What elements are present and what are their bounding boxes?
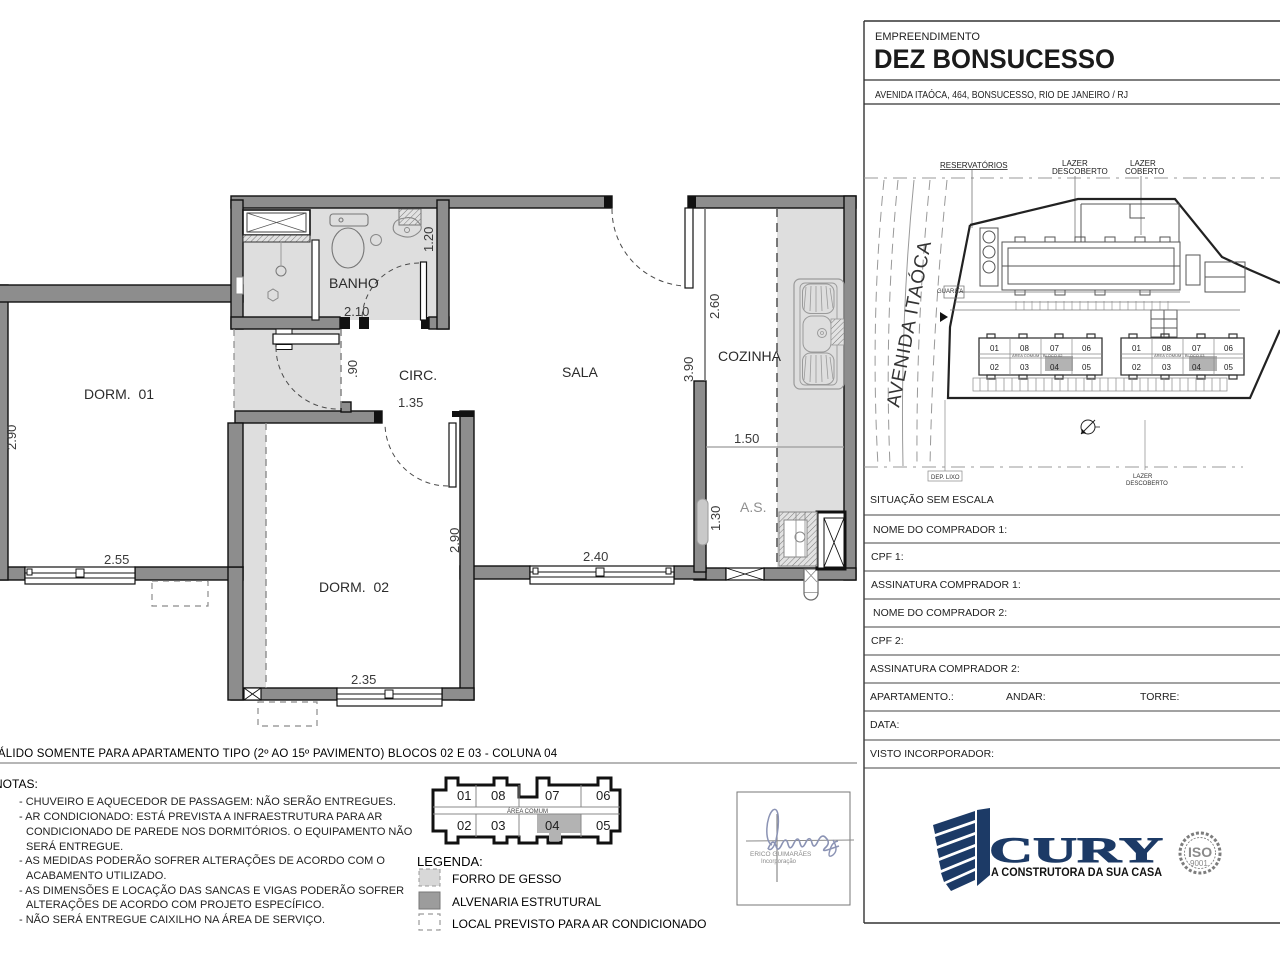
svg-text:03: 03	[1162, 363, 1171, 372]
svg-text:LOCAL PREVISTO PARA AR CONDICI: LOCAL PREVISTO PARA AR CONDICIONADO	[452, 917, 707, 931]
svg-text:2.40: 2.40	[583, 549, 608, 564]
svg-text:VISTO INCORPORADOR:: VISTO INCORPORADOR:	[870, 748, 994, 760]
svg-text:04: 04	[1192, 363, 1201, 372]
svg-text:LAZER: LAZER	[1133, 474, 1153, 480]
svg-text:01: 01	[457, 788, 471, 803]
svg-text:02: 02	[457, 818, 471, 833]
svg-text:DESCOBERTO: DESCOBERTO	[1052, 167, 1108, 176]
svg-text:2.60: 2.60	[707, 294, 722, 319]
svg-text:07: 07	[1192, 344, 1201, 353]
svg-text:DORM. 01: DORM. 01	[84, 386, 154, 402]
svg-text:ACABAMENTO UTILIZADO.: ACABAMENTO UTILIZADO.	[26, 870, 166, 882]
svg-text:NOTAS:: NOTAS:	[0, 777, 38, 791]
svg-text:02: 02	[1132, 363, 1141, 372]
svg-text:CIRC.: CIRC.	[399, 367, 437, 383]
svg-text:- AS MEDIDAS PODERÃO SOFRER AL: - AS MEDIDAS PODERÃO SOFRER ALTERAÇÕES D…	[19, 854, 385, 867]
svg-text:03: 03	[1020, 363, 1029, 372]
svg-text:ÁREA COMUM: ÁREA COMUM	[507, 808, 548, 815]
svg-text:1.20: 1.20	[421, 227, 436, 252]
svg-text:COZINHA: COZINHA	[718, 348, 782, 364]
svg-text:ALVENARIA ESTRUTURAL: ALVENARIA ESTRUTURAL	[452, 895, 601, 909]
svg-text:APARTAMENTO.:: APARTAMENTO.:	[870, 691, 954, 703]
svg-text:- CHUVEIRO E AQUECEDOR DE PASS: - CHUVEIRO E AQUECEDOR DE PASSAGEM: NÃO …	[19, 795, 396, 808]
svg-text:VÁLIDO SOMENTE PARA APARTAMENT: VÁLIDO SOMENTE PARA APARTAMENTO TIPO (2º…	[0, 747, 558, 760]
svg-text:ANDAR:: ANDAR:	[1006, 691, 1046, 703]
svg-text:- AR CONDICIONADO: ESTÁ PREVIS: - AR CONDICIONADO: ESTÁ PREVISTA A INFRA…	[19, 810, 382, 823]
svg-text:04: 04	[1050, 363, 1059, 372]
svg-text:02: 02	[990, 363, 999, 372]
svg-text:1.30: 1.30	[708, 506, 723, 531]
svg-text:ERICO GUIMARÃES: ERICO GUIMARÃES	[750, 849, 812, 858]
svg-text:NOME DO COMPRADOR 1:: NOME DO COMPRADOR 1:	[873, 524, 1007, 536]
svg-text:ASSINATURA COMPRADOR 2:: ASSINATURA COMPRADOR 2:	[870, 663, 1020, 675]
svg-text:3.90: 3.90	[681, 357, 696, 382]
svg-text:BANHO: BANHO	[329, 275, 379, 291]
svg-text:Incorporação: Incorporação	[761, 859, 797, 865]
svg-text:ISO: ISO	[1188, 844, 1212, 860]
svg-text:ALTERAÇÕES DE ACORDO COM PROJE: ALTERAÇÕES DE ACORDO COM PROJETO ESPECÍF…	[26, 898, 324, 911]
svg-text:05: 05	[596, 818, 610, 833]
svg-text:DORM. 02: DORM. 02	[319, 579, 389, 595]
svg-text:2.90: 2.90	[447, 528, 462, 553]
svg-text:05: 05	[1082, 363, 1091, 372]
svg-text:08: 08	[1162, 344, 1171, 353]
svg-text:ÁREA COMUM - BLOCO 02: ÁREA COMUM - BLOCO 02	[1012, 353, 1063, 358]
svg-text:07: 07	[545, 788, 559, 803]
svg-text:2.35: 2.35	[351, 672, 376, 687]
svg-text:COBERTO: COBERTO	[1125, 167, 1164, 176]
svg-text:CPF 2:: CPF 2:	[871, 635, 904, 647]
svg-text:05: 05	[1224, 363, 1233, 372]
svg-text:2.10: 2.10	[344, 304, 369, 319]
svg-text:01: 01	[1132, 344, 1141, 353]
svg-text:LEGENDA:: LEGENDA:	[417, 854, 483, 869]
svg-text:- AS DIMENSÕES E LOCAÇÃO DAS S: - AS DIMENSÕES E LOCAÇÃO DAS SANCAS E VI…	[19, 884, 404, 897]
svg-text:FORRO DE GESSO: FORRO DE GESSO	[452, 872, 561, 886]
svg-text:06: 06	[596, 788, 610, 803]
svg-text:1.50: 1.50	[734, 431, 759, 446]
svg-text:A.S.: A.S.	[740, 499, 766, 515]
svg-text:CONDICIONADO DE PAREDE NOS DOR: CONDICIONADO DE PAREDE NOS DORMITÓRIOS. …	[26, 825, 413, 838]
svg-text:04: 04	[545, 818, 559, 833]
svg-text:DEP. LIXO: DEP. LIXO	[931, 475, 960, 481]
svg-text:SITUAÇÃO SEM ESCALA: SITUAÇÃO SEM ESCALA	[870, 493, 994, 506]
svg-text:07: 07	[1050, 344, 1059, 353]
svg-text:ÁREA COMUM - BLOCO 03: ÁREA COMUM - BLOCO 03	[1154, 353, 1205, 358]
svg-text:TORRE:: TORRE:	[1140, 691, 1179, 703]
svg-text:2.90: 2.90	[4, 425, 19, 450]
svg-text:08: 08	[491, 788, 505, 803]
svg-text:9001: 9001	[1190, 859, 1208, 868]
svg-text:SALA: SALA	[562, 364, 598, 380]
svg-text:NOME DO COMPRADOR 2:: NOME DO COMPRADOR 2:	[873, 607, 1007, 619]
svg-text:GUARITA: GUARITA	[937, 289, 963, 295]
svg-text:1.35: 1.35	[398, 395, 423, 410]
svg-text:03: 03	[491, 818, 505, 833]
svg-text:EMPREENDIMENTO: EMPREENDIMENTO	[875, 31, 980, 43]
svg-text:DATA:: DATA:	[870, 719, 899, 731]
svg-text:.90: .90	[345, 360, 360, 378]
svg-text:DEZ BONSUCESSO: DEZ BONSUCESSO	[874, 44, 1115, 74]
svg-text:SERÁ ENTREGUE.: SERÁ ENTREGUE.	[26, 840, 123, 853]
svg-text:DESCOBERTO: DESCOBERTO	[1126, 481, 1168, 487]
svg-text:RESERVATÓRIOS: RESERVATÓRIOS	[940, 161, 1008, 170]
svg-text:2.55: 2.55	[104, 552, 129, 567]
svg-text:06: 06	[1082, 344, 1091, 353]
svg-text:ASSINATURA COMPRADOR 1:: ASSINATURA COMPRADOR 1:	[871, 579, 1021, 591]
svg-text:- NÃO SERÁ ENTREGUE CAIXILHO N: - NÃO SERÁ ENTREGUE CAIXILHO NA ÁREA DE …	[19, 913, 325, 926]
svg-text:AVENIDA ITAÓCA, 464, BONSUCESS: AVENIDA ITAÓCA, 464, BONSUCESSO, RIO DE …	[875, 88, 1128, 101]
svg-text:08: 08	[1020, 344, 1029, 353]
svg-text:01: 01	[990, 344, 999, 353]
svg-text:06: 06	[1224, 344, 1233, 353]
svg-text:CURY: CURY	[989, 830, 1163, 870]
svg-text:CPF 1:: CPF 1:	[871, 551, 904, 563]
svg-text:A CONSTRUTORA DA SUA CASA: A CONSTRUTORA DA SUA CASA	[991, 867, 1162, 879]
